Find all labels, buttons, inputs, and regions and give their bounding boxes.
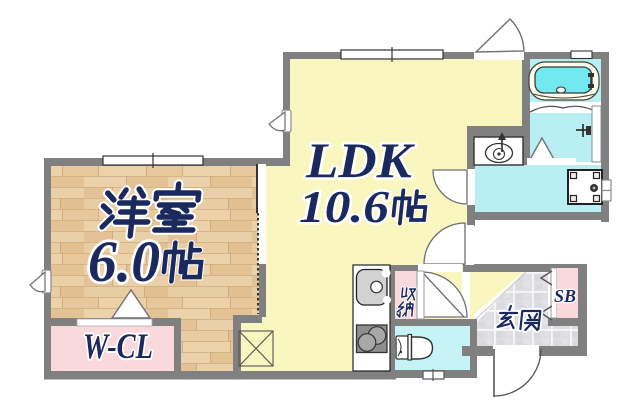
svg-text:10.6: 10.6 [299, 181, 389, 232]
svg-text:SB: SB [554, 286, 576, 306]
svg-text:W-CL: W-CL [83, 326, 153, 366]
svg-text:LDK: LDK [305, 132, 416, 188]
svg-text:6.0: 6.0 [88, 229, 160, 294]
